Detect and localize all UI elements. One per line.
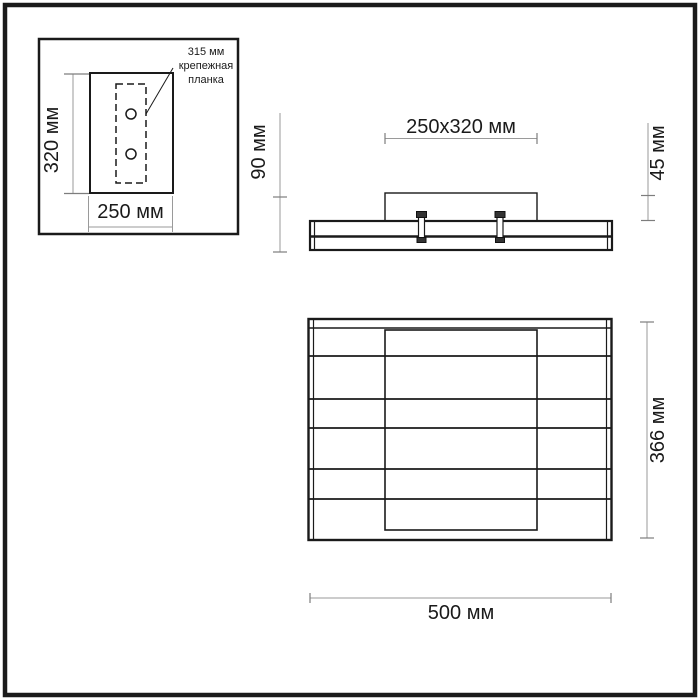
screw-flange [496, 238, 505, 243]
annotation-line1: 315 мм [188, 46, 225, 58]
side-view: 250x320 мм 90 мм 45 мм [248, 113, 669, 252]
screw-stem [497, 217, 503, 238]
screw-stem [419, 217, 425, 238]
front-height-dim-label: 366 мм [647, 397, 669, 463]
mounting-box-outline [385, 193, 537, 221]
mounting-plate-inset: 315 мм крепежная планка 320 мм 250 мм [39, 39, 238, 234]
mount-size-dim-label: 250x320 мм [406, 116, 516, 138]
total-height-dim-label: 90 мм [248, 124, 270, 179]
panel-front-outline [309, 319, 612, 540]
screw-flange [417, 238, 426, 243]
screw-head [495, 212, 505, 218]
annotation-line2: крепежная [179, 60, 234, 72]
bracket-height-dim-label: 45 мм [647, 125, 669, 180]
dimension-drawing: 315 мм крепежная планка 320 мм 250 мм [0, 0, 700, 700]
front-view: 366 мм 500 мм [309, 319, 670, 624]
mounting-plate-outline [90, 73, 173, 193]
fastener-screw-right [495, 212, 505, 243]
inset-height-dim-label: 320 мм [41, 107, 63, 173]
front-width-dim-label: 500 мм [428, 602, 494, 624]
annotation-line3: планка [188, 74, 225, 86]
inset-width-dim-label: 250 мм [97, 201, 163, 223]
fastener-screw-left [417, 212, 427, 243]
dimension-drawing-canvas: 315 мм крепежная планка 320 мм 250 мм [0, 0, 700, 700]
screw-head [417, 212, 427, 218]
